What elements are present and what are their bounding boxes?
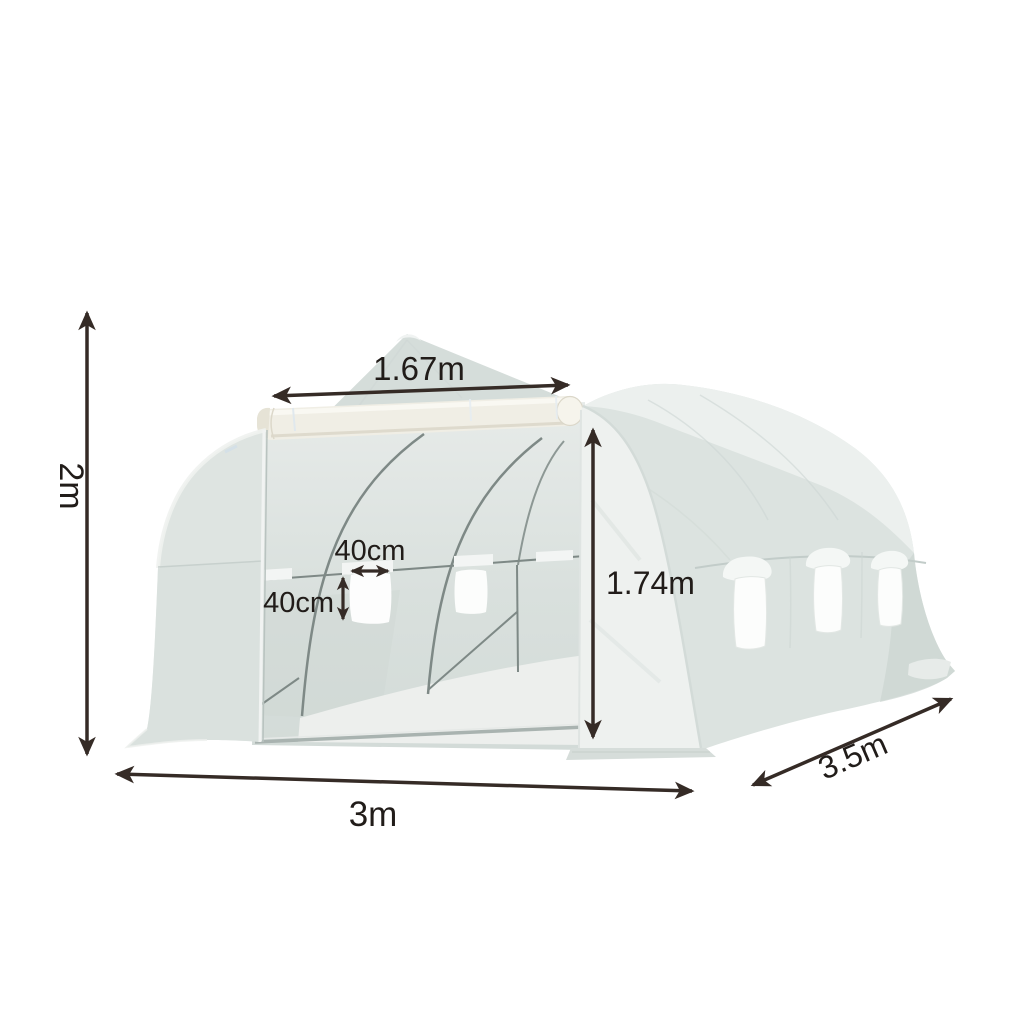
window-mesh-pane [878,568,903,627]
interior-window [350,573,392,624]
greenhouse-dimension-diagram: 2m 1.67m 1.74m 40cm 40cm 3m 3.5m [0,0,1024,1024]
jamb-bottom-skirt [566,748,716,760]
width-dimension-arrow [117,774,692,791]
side-seam-line [790,556,791,648]
roll-tie [470,399,471,421]
window-width-dimension-label: 40cm [335,535,406,567]
window-mesh-pane [734,577,767,650]
ridge-width-dimension-label: 1.67m [373,350,465,387]
interior-corner-post [517,565,518,672]
left-panel-lower-shade [127,561,263,747]
roll-end-cap [557,397,583,426]
depth-dimension-label: 3.5m [813,725,893,786]
window-mesh-pane [814,566,843,633]
roll-tie [556,396,557,419]
door-height-dimension-label: 1.74m [606,565,695,601]
door-opening-interior [252,402,585,750]
rail-tape [454,554,493,567]
front-left-panel [127,430,267,747]
greenhouse-illustration [127,334,955,760]
window-height-dimension-label: 40cm [263,587,334,619]
rail-tape [536,550,573,562]
height-dimension-label: 2m [52,462,90,509]
diagram-canvas: 2m 1.67m 1.74m 40cm 40cm 3m 3.5m [0,0,1024,1024]
width-dimension-label: 3m [349,795,398,834]
interior-window [455,570,488,614]
